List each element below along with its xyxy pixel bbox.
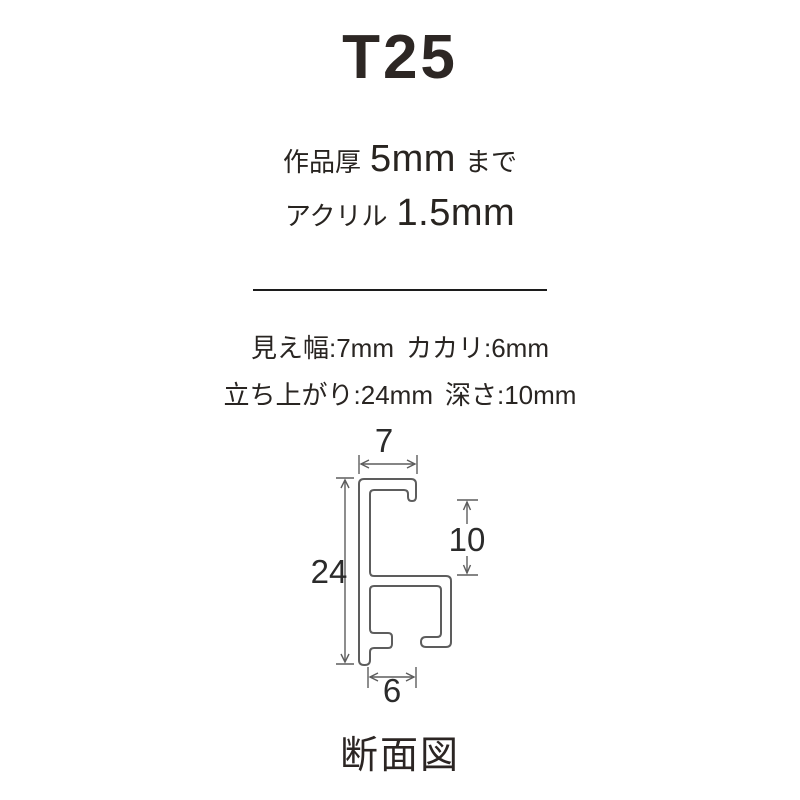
- section-caption: 断面図: [0, 724, 800, 779]
- detail-line-2: 立ち上がり:24mm 深さ:10mm: [0, 375, 800, 412]
- page-title: T25: [0, 22, 800, 93]
- spec-work-value: 5mm: [370, 138, 456, 181]
- spec-acrylic: アクリル 1.5mm: [0, 192, 800, 235]
- dimension-bottom-width: [368, 667, 416, 688]
- detail-line-1: 見え幅:7mm カカリ:6mm: [0, 328, 800, 365]
- spec-work-suffix: まで: [465, 142, 517, 179]
- dimension-height: [336, 478, 354, 664]
- spec-acrylic-label: アクリル: [285, 196, 388, 233]
- dim-label-inner-depth: 10: [449, 521, 486, 558]
- dim-label-top-width: 7: [375, 422, 393, 459]
- detail-visible-width: 見え幅:7mm: [251, 328, 394, 365]
- dim-label-height: 24: [311, 553, 348, 590]
- dimension-inner-depth: [457, 500, 478, 575]
- spec-work-thickness: 作品厚 5mm まで: [0, 138, 800, 181]
- detail-depth: 深さ:10mm: [445, 375, 576, 412]
- detail-rise: 立ち上がり:24mm: [224, 375, 433, 412]
- profile-outline: [359, 479, 451, 665]
- dim-label-bottom-width: 6: [383, 672, 401, 709]
- spec-acrylic-value: 1.5mm: [397, 192, 516, 235]
- divider-line: [253, 289, 547, 291]
- page: { "header": { "title": "T25", "spec_work…: [0, 0, 800, 800]
- detail-kakari: カカリ:6mm: [406, 328, 549, 365]
- spec-work-label: 作品厚: [283, 142, 361, 179]
- dimension-top-width: [359, 455, 417, 474]
